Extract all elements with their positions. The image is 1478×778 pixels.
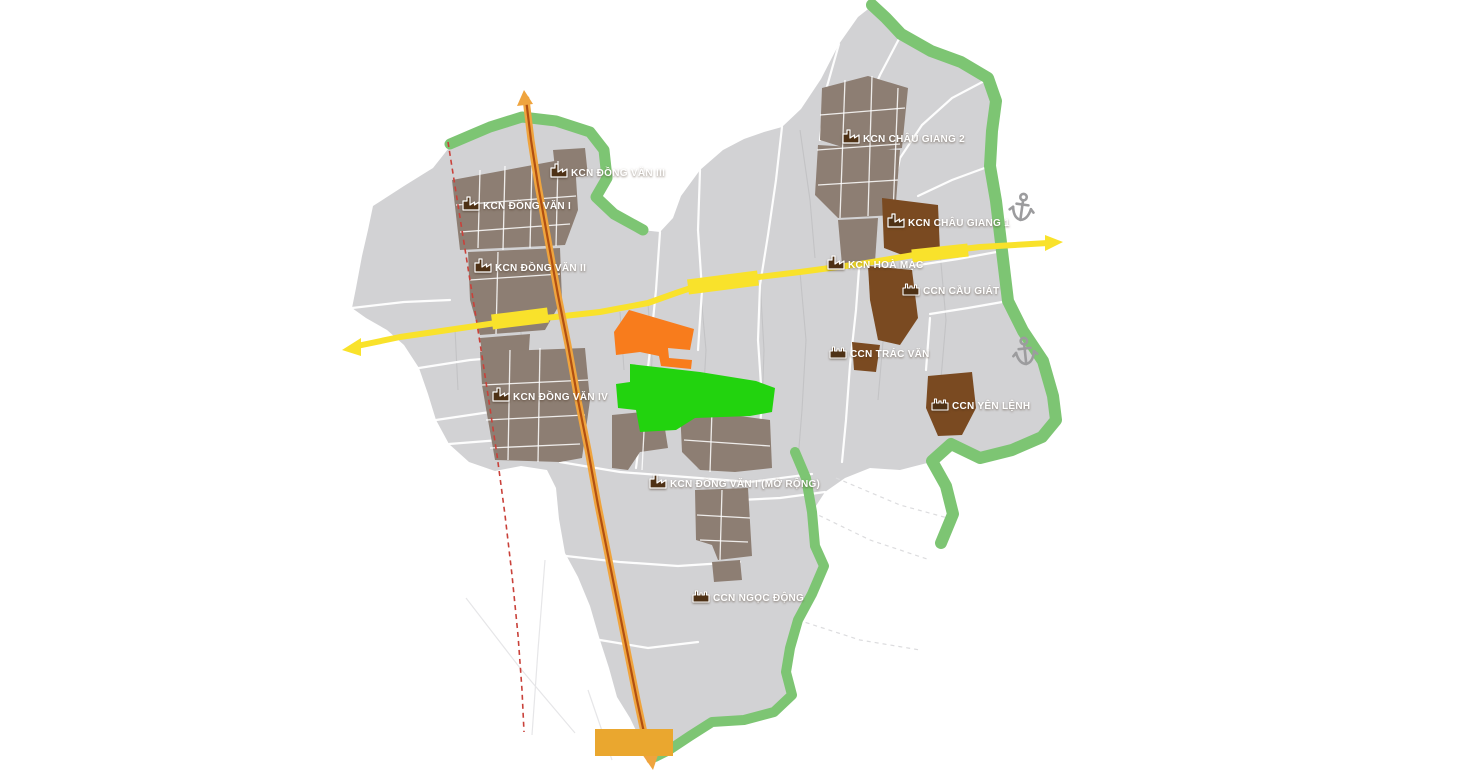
factory-icon (693, 591, 709, 602)
zone-label-text: KCN CHÂU GIANG 2 (863, 132, 965, 145)
factory-icon (903, 284, 919, 295)
expressway-interchange (688, 278, 758, 287)
zone-label-text: KCN ĐỒNG VĂN I (483, 199, 571, 212)
zone-label-text: KCN ĐỒNG VĂN I (MỞ RỘNG) (670, 477, 820, 490)
built-zone (838, 218, 878, 265)
expressway-arrow-east (1045, 235, 1063, 251)
expressway-interchange (912, 250, 968, 256)
national-road-arrow-north (517, 90, 533, 106)
anchor-icon (1008, 192, 1035, 221)
zone-label-text: KCN ĐỒNG VĂN II (495, 261, 586, 274)
factory-icon (932, 399, 948, 410)
zone-label-text: KCN HOÀ MẠC (848, 258, 924, 271)
zone-label-text: KCN ĐỒNG VĂN III (571, 166, 665, 179)
zone-label-text: CCN NGỌC ĐỘNG (713, 591, 804, 604)
zone-label-text: CCN YÊN LỆNH (952, 399, 1030, 412)
expressway-arrow-west (342, 338, 361, 356)
factory-icon (830, 347, 846, 358)
bridge-marker (595, 729, 673, 756)
built-zone (712, 560, 742, 582)
expressway-interchange (492, 315, 548, 322)
zone-label-text: CCN TRÁC VĂN (850, 347, 930, 360)
zone-label-text: KCN ĐỒNG VĂN IV (513, 390, 608, 403)
map-viewport[interactable]: KCN ĐỒNG VĂN III KCN ĐỒNG VĂN I KCN ĐỒNG… (0, 0, 1478, 778)
zone-label-text: KCN CHÂU GIANG 1 (908, 216, 1010, 229)
zone-label-text: CCN CẦU GIÁT (923, 284, 999, 297)
